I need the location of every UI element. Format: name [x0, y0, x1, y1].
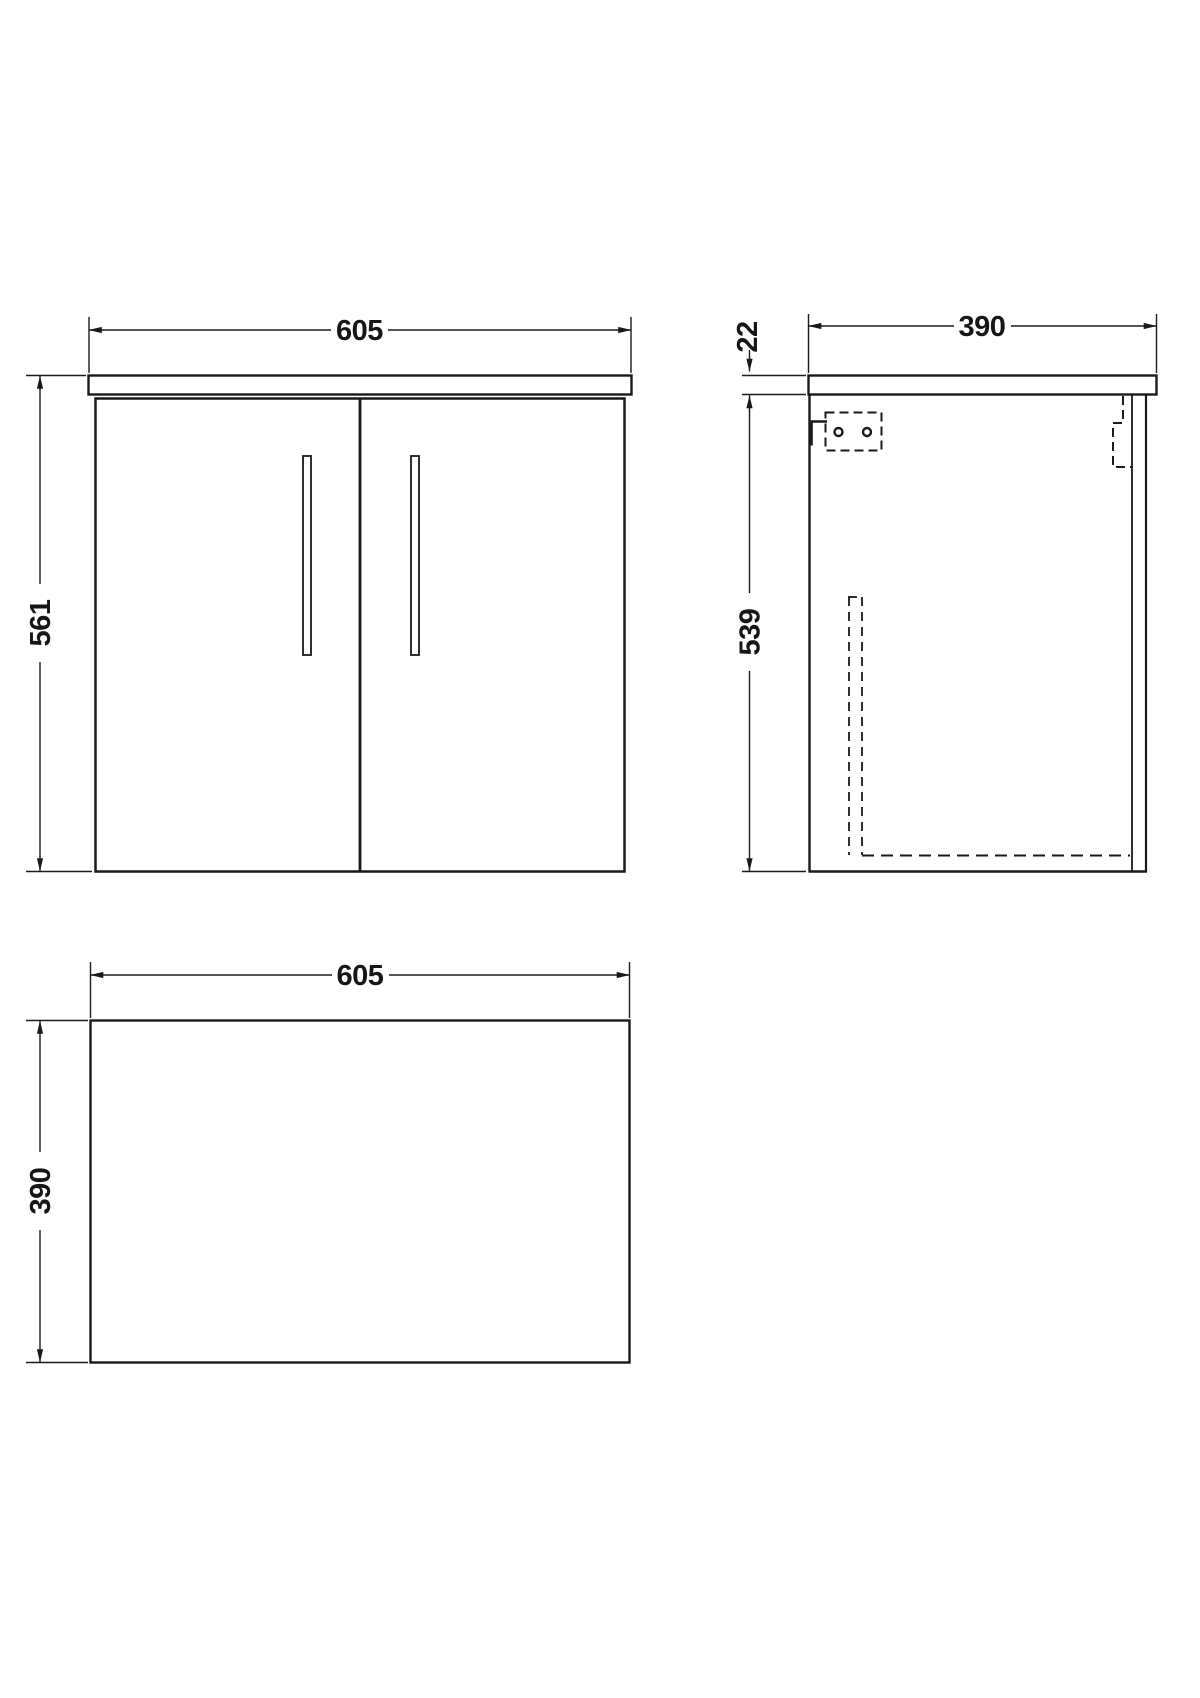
front-height-dim-label: 561 [25, 599, 57, 646]
front-right-door-handle [411, 456, 419, 655]
drawing-page: 605 561 [0, 0, 1200, 1698]
front-left-door-handle [303, 456, 311, 655]
side-depth-dim-label: 390 [959, 311, 1006, 343]
plan-width-dim-label: 605 [337, 960, 384, 992]
bracket-screw-hole [835, 428, 843, 436]
technical-drawing: 605 561 [0, 0, 1200, 1698]
plan-depth-dim-label: 390 [25, 1168, 57, 1215]
front-width-dim-label: 605 [336, 315, 383, 347]
bracket-screw-hole [863, 428, 871, 436]
side-thickness-dim-label: 22 [732, 321, 764, 352]
canvas-background [0, 0, 1200, 1698]
side-height-dim-label: 539 [735, 608, 767, 655]
